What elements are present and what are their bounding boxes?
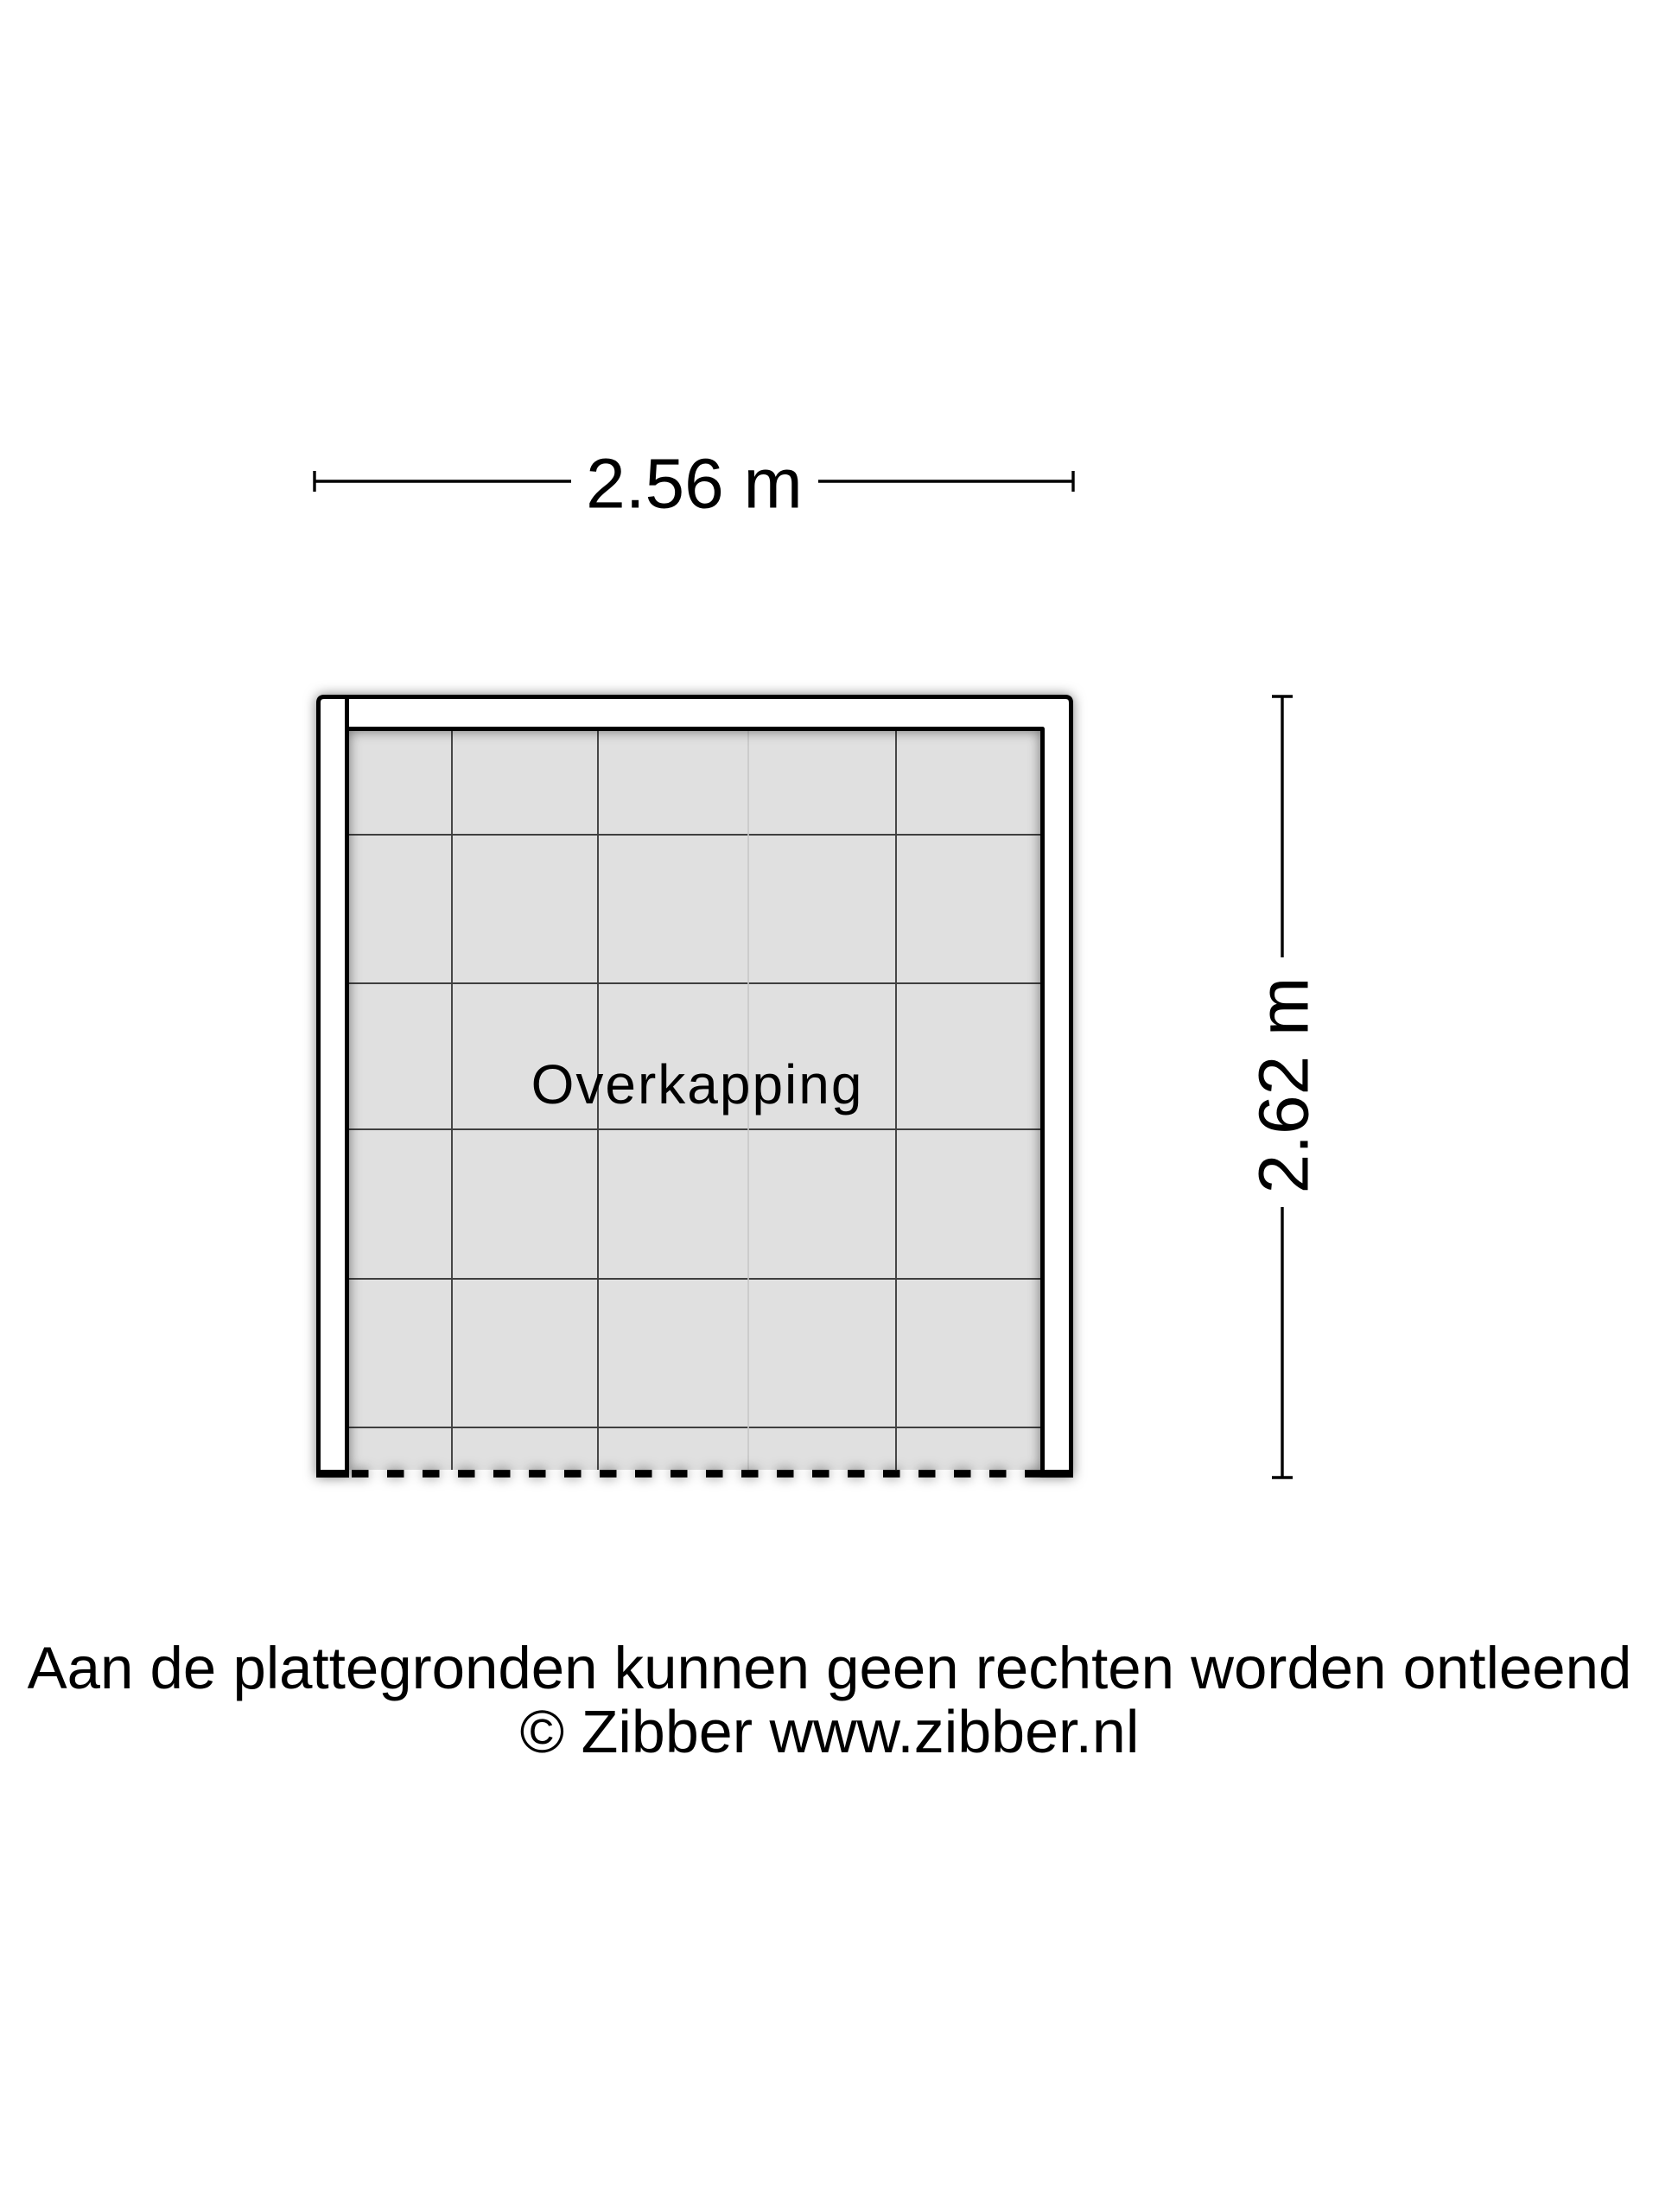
svg-text:2.56 m: 2.56 m: [586, 445, 803, 524]
svg-text:Aan de plattegronden kunnen ge: Aan de plattegronden kunnen geen rechten…: [28, 1635, 1632, 1701]
svg-text:© Zibber www.zibber.nl: © Zibber www.zibber.nl: [520, 1698, 1140, 1765]
svg-text:Overkapping: Overkapping: [531, 1053, 864, 1116]
svg-text:2.62 m: 2.62 m: [1245, 977, 1324, 1194]
